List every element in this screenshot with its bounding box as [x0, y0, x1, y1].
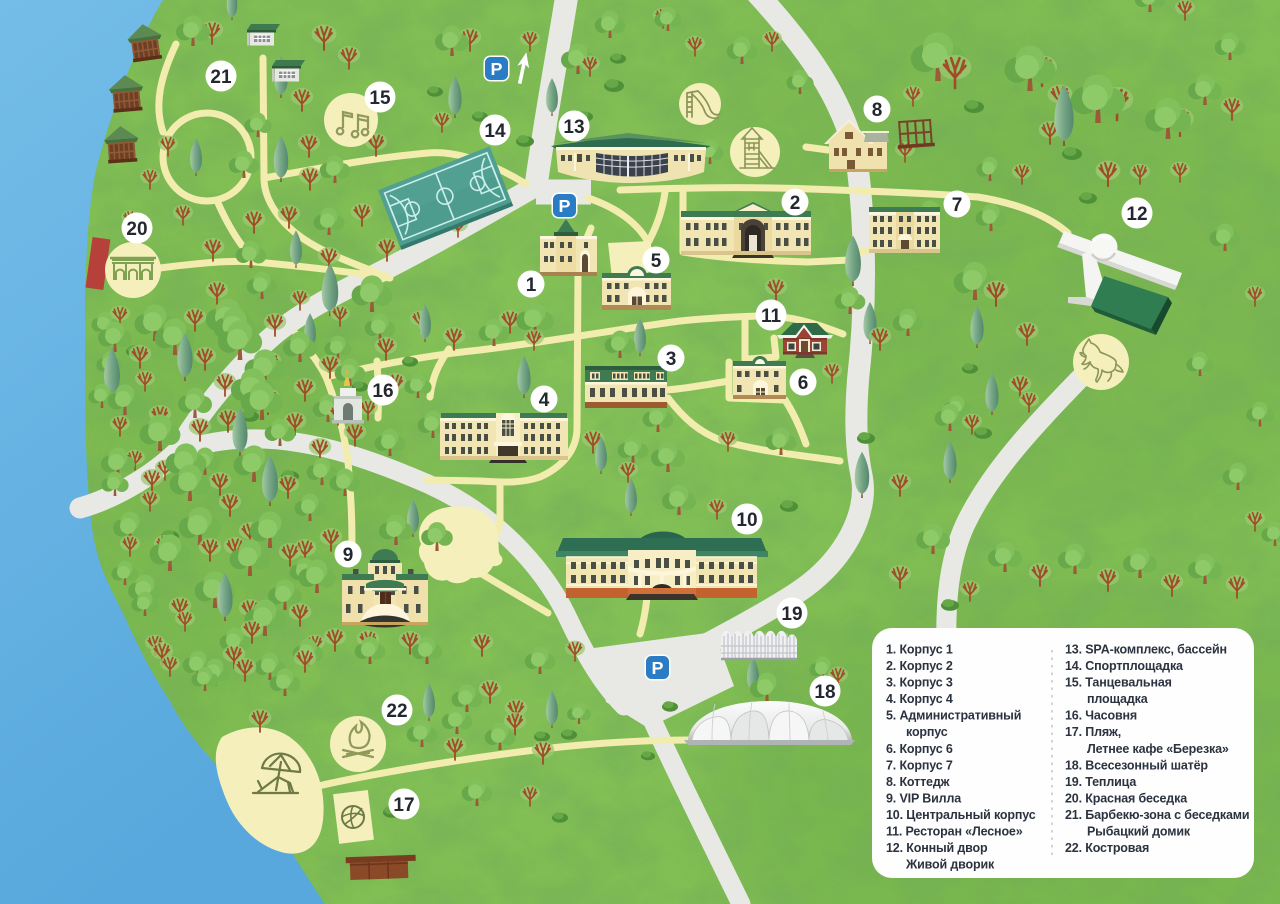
- svg-text:19. Теплица: 19. Теплица: [1065, 775, 1137, 789]
- svg-text:P: P: [559, 196, 571, 216]
- svg-text:20: 20: [126, 219, 147, 240]
- svg-text:P: P: [491, 59, 503, 79]
- svg-text:16. Часовня: 16. Часовня: [1065, 709, 1137, 723]
- svg-text:5. Административный: 5. Административный: [886, 709, 1021, 723]
- svg-text:11. Ресторан «Лесное»: 11. Ресторан «Лесное»: [886, 825, 1023, 839]
- svg-text:14: 14: [484, 121, 506, 142]
- svg-text:1. Корпус 1: 1. Корпус 1: [886, 643, 953, 657]
- svg-text:9. VIP Вилла: 9. VIP Вилла: [886, 792, 962, 806]
- svg-text:15. Танцевальная: 15. Танцевальная: [1065, 676, 1172, 690]
- svg-text:12: 12: [1126, 204, 1147, 225]
- svg-text:1: 1: [526, 275, 537, 296]
- svg-text:8: 8: [872, 100, 883, 121]
- svg-text:3: 3: [666, 349, 677, 370]
- svg-text:корпус: корпус: [906, 725, 948, 739]
- svg-text:4: 4: [539, 390, 550, 411]
- svg-text:2: 2: [790, 193, 801, 214]
- svg-text:6. Корпус 6: 6. Корпус 6: [886, 742, 953, 756]
- svg-text:Летнее кафе «Березка»: Летнее кафе «Березка»: [1087, 742, 1229, 756]
- svg-text:7: 7: [952, 195, 963, 216]
- svg-text:4. Корпус 4: 4. Корпус 4: [886, 692, 953, 706]
- svg-text:2. Корпус 2: 2. Корпус 2: [886, 659, 953, 673]
- svg-text:18: 18: [814, 682, 835, 703]
- svg-text:P: P: [652, 658, 664, 678]
- svg-text:18. Всесезонный шатёр: 18. Всесезонный шатёр: [1065, 758, 1208, 772]
- svg-text:19: 19: [781, 604, 802, 625]
- svg-text:3. Корпус 3: 3. Корпус 3: [886, 676, 953, 690]
- svg-text:7. Корпус 7: 7. Корпус 7: [886, 758, 953, 772]
- svg-text:Живой дворик: Живой дворик: [905, 858, 995, 872]
- svg-text:15: 15: [369, 88, 391, 109]
- svg-text:10: 10: [736, 510, 757, 531]
- svg-text:22: 22: [386, 701, 407, 722]
- svg-text:13. SPA-комплекс, бассейн: 13. SPA-комплекс, бассейн: [1065, 643, 1227, 657]
- svg-text:17. Пляж,: 17. Пляж,: [1065, 725, 1121, 739]
- svg-text:16: 16: [372, 381, 393, 402]
- svg-text:5: 5: [651, 251, 662, 272]
- svg-text:Рыбацкий домик: Рыбацкий домик: [1087, 825, 1191, 839]
- svg-text:10. Центральный корпус: 10. Центральный корпус: [886, 808, 1036, 822]
- svg-text:17: 17: [393, 795, 414, 816]
- svg-text:11: 11: [761, 306, 782, 327]
- svg-text:21: 21: [210, 67, 232, 88]
- svg-text:6: 6: [798, 373, 809, 394]
- svg-text:22. Костровая: 22. Костровая: [1065, 841, 1149, 855]
- svg-text:12. Конный двор: 12. Конный двор: [886, 841, 988, 855]
- svg-text:21. Барбекю-зона с беседками: 21. Барбекю-зона с беседками: [1065, 808, 1249, 822]
- svg-text:8. Коттедж: 8. Коттедж: [886, 775, 950, 789]
- svg-text:площадка: площадка: [1087, 692, 1149, 706]
- svg-text:13: 13: [563, 117, 584, 138]
- svg-text:20. Красная беседка: 20. Красная беседка: [1065, 792, 1188, 806]
- svg-text:14. Спортплощадка: 14. Спортплощадка: [1065, 659, 1184, 673]
- svg-text:9: 9: [343, 545, 354, 566]
